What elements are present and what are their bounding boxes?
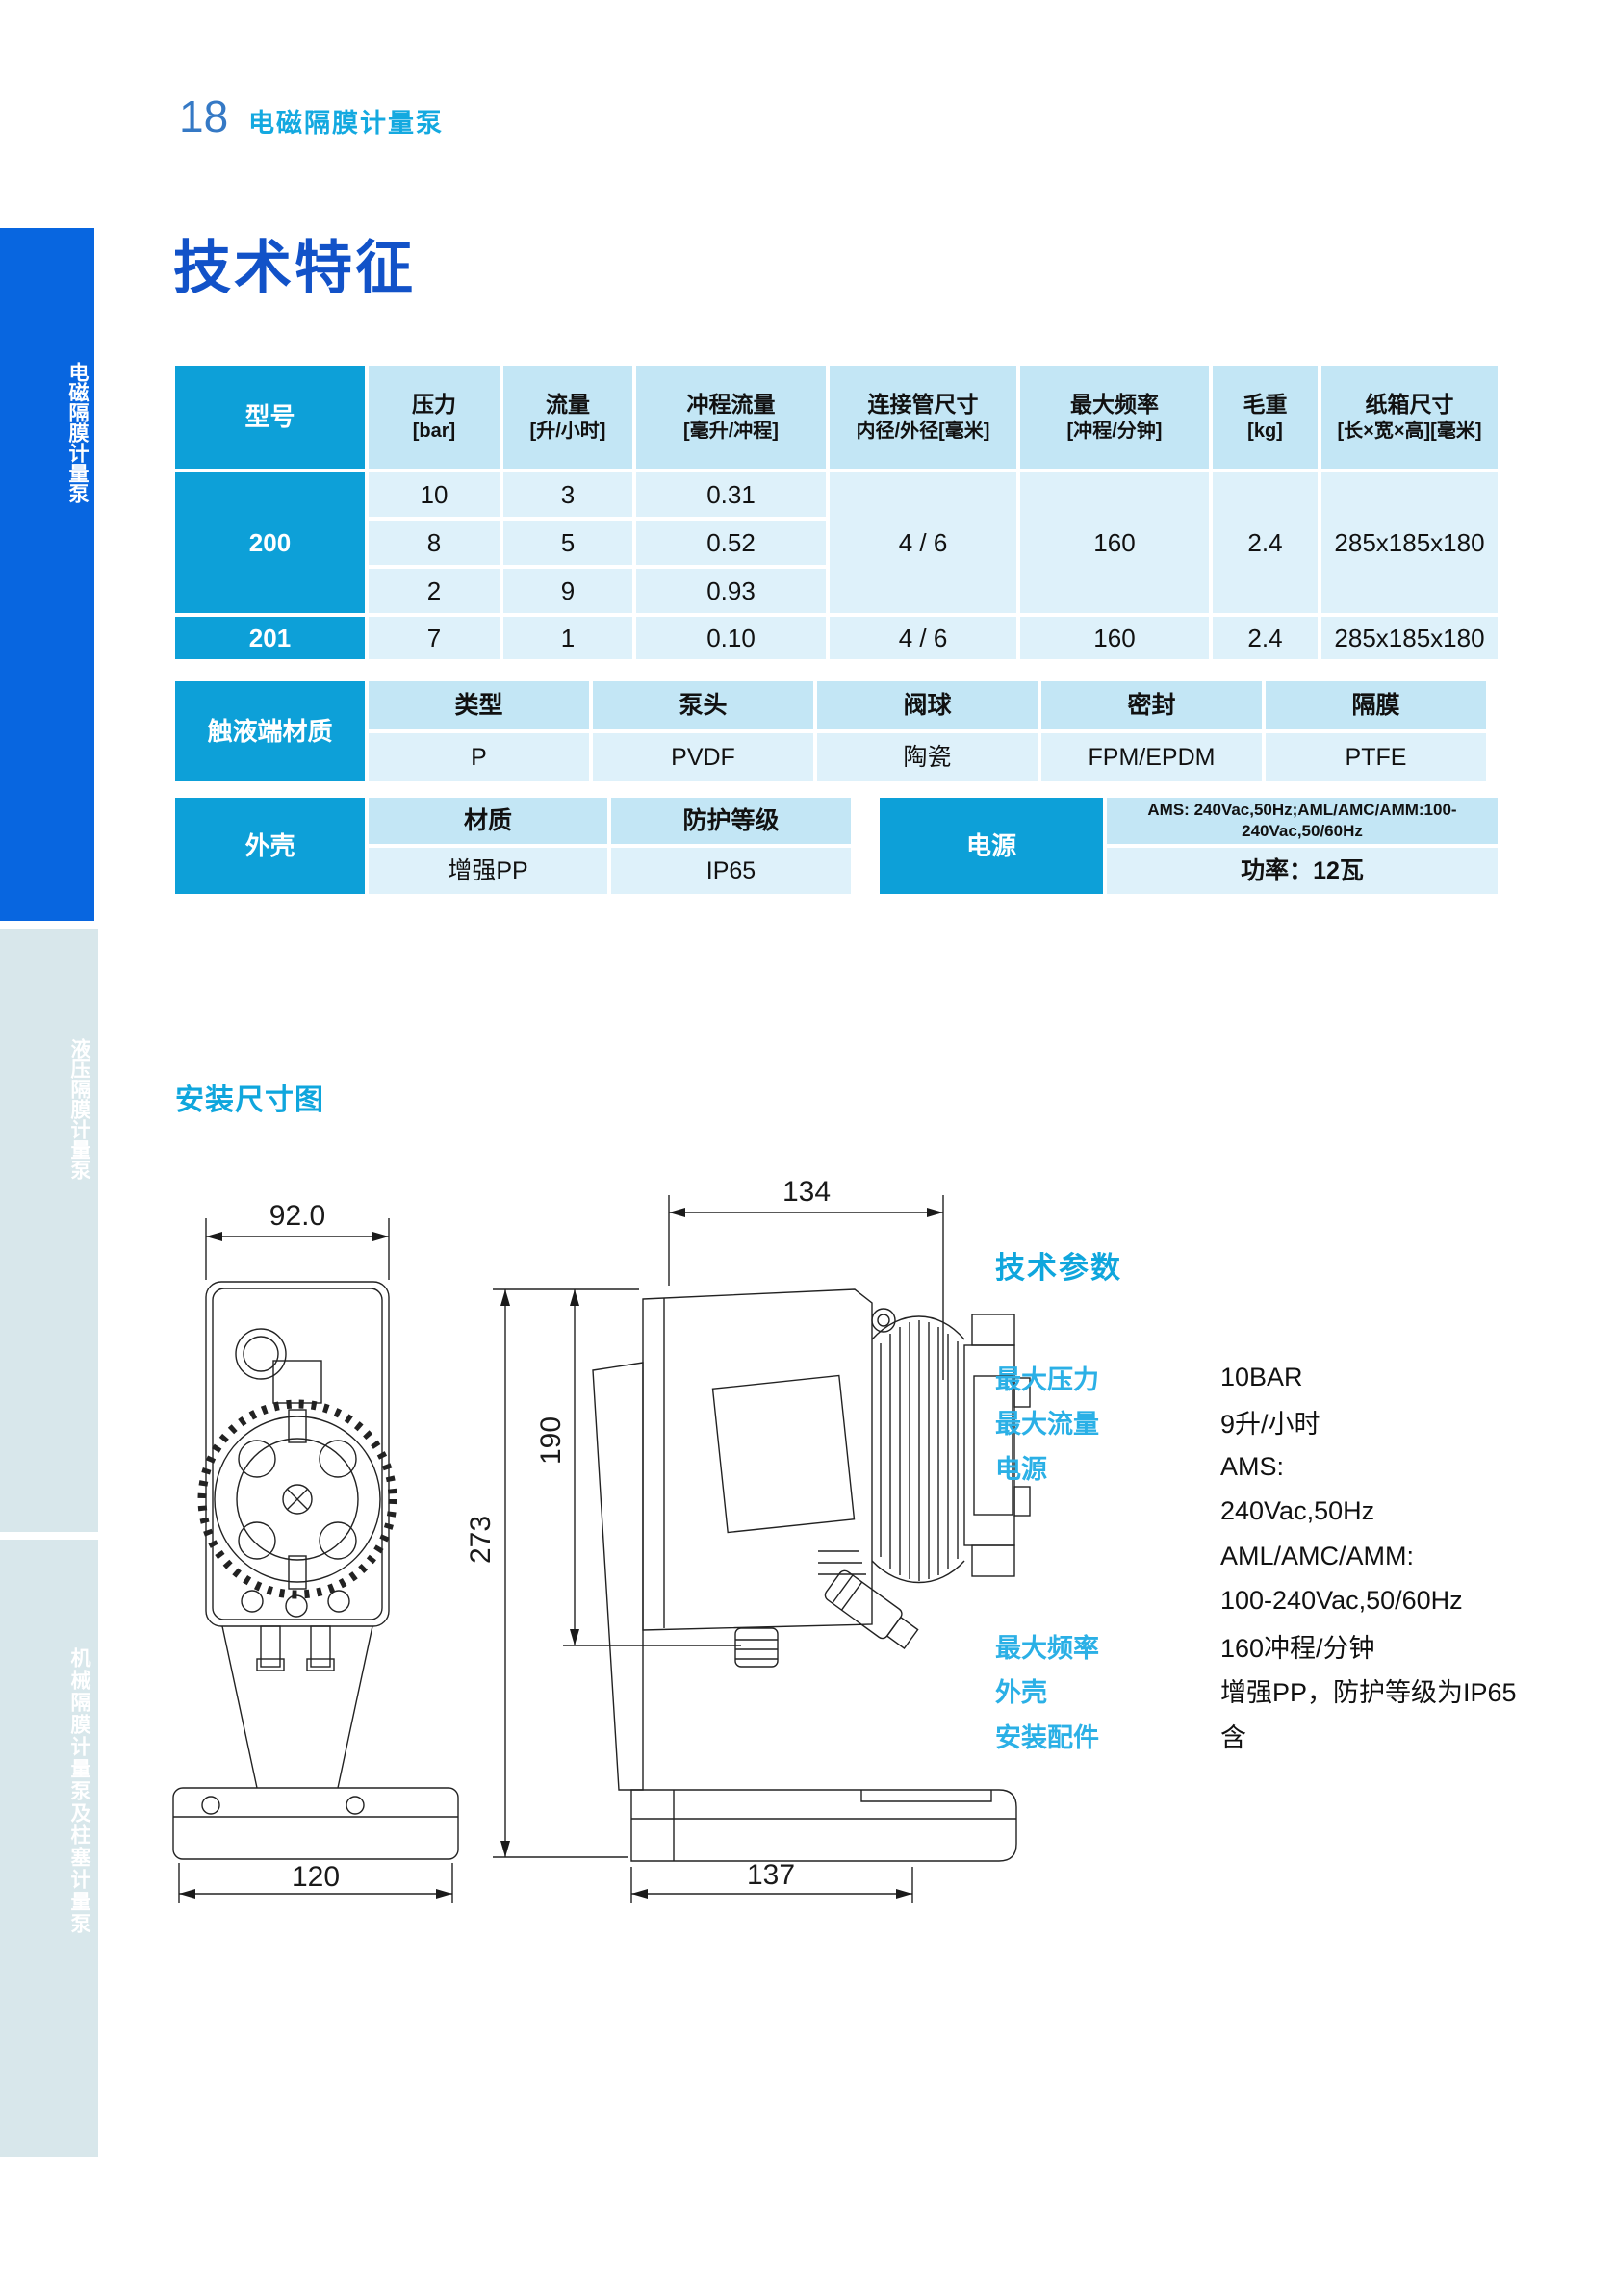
header-unit: [升/小时] bbox=[530, 419, 606, 444]
tech-param-row: 最大频率 160冲程/分钟 bbox=[995, 1623, 1515, 1669]
spec-value-cell: 285x185x180 bbox=[1321, 472, 1498, 613]
spec-header-model: 型号 bbox=[175, 366, 365, 469]
spec-model-cell: 201 bbox=[175, 617, 365, 659]
tech-param-value: 240Vac,50Hz bbox=[1220, 1496, 1374, 1526]
tech-param-value: 增强PP，防护等级为IP65 bbox=[1220, 1671, 1517, 1709]
header-unit: 内径/外径[毫米] bbox=[857, 419, 990, 444]
tech-param-row: 最大流量 9升/小时 bbox=[995, 1400, 1515, 1445]
dim-label-front-top-width: 92.0 bbox=[269, 1200, 325, 1233]
tech-param-row: 240Vac,50Hz bbox=[995, 1490, 1515, 1535]
installation-dimension-drawing bbox=[0, 0, 1615, 2296]
catalog-page: { "colors": { "accent_blue": "#1252c8", … bbox=[0, 0, 1615, 2296]
dim-label-front-base-width: 120 bbox=[292, 1861, 340, 1894]
housing-table: 外壳 材质 防护等级 增强PP IP65 bbox=[175, 798, 851, 894]
tech-param-row: 最大压力 10BAR bbox=[995, 1355, 1515, 1400]
page-number: 18 bbox=[179, 90, 228, 142]
tech-param-label: 安装配件 bbox=[995, 1717, 1220, 1754]
tech-param-value: AML/AMC/AMM: bbox=[1220, 1542, 1414, 1571]
spec-value-cell: 0.31 bbox=[636, 472, 826, 517]
header-unit: [kg] bbox=[1247, 419, 1283, 444]
header-line: 最大频率 bbox=[1070, 390, 1159, 419]
header-line: 型号 bbox=[244, 400, 295, 433]
sidebar-tab-mechanical-pumps[interactable]: 机械隔膜计量泵及柱塞计量泵 bbox=[0, 1540, 98, 2157]
material-value-cell: PVDF bbox=[593, 733, 813, 781]
spec-value-cell: 2.4 bbox=[1213, 472, 1318, 613]
sidebar-tab-label: 液压隔膜计量泵 bbox=[69, 1038, 90, 1180]
tech-param-label: 最大频率 bbox=[995, 1627, 1220, 1665]
tech-param-label: 最大流量 bbox=[995, 1403, 1220, 1441]
sidebar-tab-hydraulic-pumps[interactable]: 液压隔膜计量泵 bbox=[0, 929, 98, 1532]
tech-param-label: 外壳 bbox=[995, 1671, 1220, 1709]
tech-param-value: 含 bbox=[1220, 1717, 1246, 1754]
material-header-diaphragm: 隔膜 bbox=[1266, 681, 1486, 729]
spec-value-cell: 8 bbox=[369, 521, 500, 565]
header-unit: [冲程/分钟] bbox=[1067, 419, 1163, 444]
pump-front-view-drawing bbox=[173, 1218, 458, 1903]
tech-param-row: 100-240Vac,50/60Hz bbox=[995, 1579, 1515, 1624]
spec-value-cell: 5 bbox=[503, 521, 632, 565]
tech-param-value: 160冲程/分钟 bbox=[1220, 1627, 1375, 1665]
sidebar-tab-label: 电磁隔膜计量泵 bbox=[67, 362, 88, 503]
spec-model-cell: 200 bbox=[175, 472, 365, 613]
page-header-title: 电磁隔膜计量泵 bbox=[248, 102, 444, 140]
header-unit: [长×宽×高][毫米] bbox=[1338, 419, 1482, 444]
material-header-seal: 密封 bbox=[1041, 681, 1262, 729]
spec-value-cell: 0.10 bbox=[636, 617, 826, 659]
material-value-cell: P bbox=[369, 733, 589, 781]
housing-table-label: 外壳 bbox=[175, 798, 365, 894]
material-value-cell: FPM/EPDM bbox=[1041, 733, 1262, 781]
tech-param-row: 外壳 增强PP，防护等级为IP65 bbox=[995, 1669, 1515, 1714]
material-table: 触液端材质 类型 泵头 阀球 密封 隔膜 P PVDF 陶瓷 FPM/EPDM … bbox=[175, 681, 1486, 781]
spec-header-pipe-size: 连接管尺寸 内径/外径[毫米] bbox=[830, 366, 1016, 469]
spec-value-cell: 2 bbox=[369, 569, 500, 613]
tech-param-value: 9升/小时 bbox=[1220, 1403, 1320, 1441]
tech-param-value: 100-240Vac,50/60Hz bbox=[1220, 1586, 1463, 1616]
spec-value-cell: 1 bbox=[503, 617, 632, 659]
spec-header-max-frequency: 最大频率 [冲程/分钟] bbox=[1020, 366, 1209, 469]
spec-value-cell: 285x185x180 bbox=[1321, 617, 1498, 659]
dim-label-side-body-height: 190 bbox=[535, 1416, 568, 1465]
header-line: 连接管尺寸 bbox=[868, 390, 979, 419]
housing-header-ip-rating: 防护等级 bbox=[611, 798, 851, 844]
tech-params-title: 技术参数 bbox=[995, 1243, 1122, 1287]
power-table: 电源 AMS: 240Vac,50Hz;AML/AMC/AMM:100-240V… bbox=[880, 798, 1498, 894]
header-line: 压力 bbox=[412, 390, 456, 419]
tech-params-list: 最大压力 10BAR 最大流量 9升/小时 电源 AMS: 240Vac,50H… bbox=[995, 1355, 1515, 1758]
tech-param-row: 安装配件 含 bbox=[995, 1713, 1515, 1758]
housing-header-material: 材质 bbox=[369, 798, 607, 844]
tech-param-value: AMS: bbox=[1220, 1452, 1284, 1482]
header-line: 冲程流量 bbox=[687, 390, 776, 419]
spec-value-cell: 10 bbox=[369, 472, 500, 517]
spec-header-weight: 毛重 [kg] bbox=[1213, 366, 1318, 469]
spec-value-cell: 3 bbox=[503, 472, 632, 517]
material-value-cell: 陶瓷 bbox=[817, 733, 1038, 781]
material-table-label: 触液端材质 bbox=[175, 681, 365, 781]
dim-label-side-base-width: 137 bbox=[747, 1859, 795, 1892]
tech-param-label: 电源 bbox=[995, 1448, 1220, 1486]
tech-param-row: AML/AMC/AMM: bbox=[995, 1534, 1515, 1579]
tech-param-label: 最大压力 bbox=[995, 1359, 1220, 1396]
header-line: 流量 bbox=[546, 390, 590, 419]
spec-value-cell: 7 bbox=[369, 617, 500, 659]
tech-param-value: 10BAR bbox=[1220, 1363, 1303, 1392]
header-line: 毛重 bbox=[1243, 390, 1288, 419]
spec-value-cell: 160 bbox=[1020, 617, 1209, 659]
pump-side-view-drawing bbox=[493, 1195, 1030, 1903]
spec-value-cell: 4 / 6 bbox=[830, 617, 1016, 659]
spec-header-flow: 流量 [升/小时] bbox=[503, 366, 632, 469]
spec-value-cell: 9 bbox=[503, 569, 632, 613]
spec-header-carton: 纸箱尺寸 [长×宽×高][毫米] bbox=[1321, 366, 1498, 469]
header-unit: [bar] bbox=[413, 419, 455, 444]
dim-label-side-top-width: 134 bbox=[782, 1176, 831, 1209]
material-header-type: 类型 bbox=[369, 681, 589, 729]
spec-header-pressure: 压力 [bar] bbox=[369, 366, 500, 469]
housing-value-cell: 增强PP bbox=[369, 848, 607, 894]
spec-table: 型号 压力 [bar] 流量 [升/小时] 冲程流量 [毫升/冲程] 连接管尺寸… bbox=[175, 366, 1498, 659]
sidebar-tab-label: 机械隔膜计量泵及柱塞计量泵 bbox=[69, 1647, 90, 1935]
power-voltage-cell: AMS: 240Vac,50Hz;AML/AMC/AMM:100-240Vac,… bbox=[1107, 798, 1498, 844]
spec-value-cell: 160 bbox=[1020, 472, 1209, 613]
page-title: 技术特征 bbox=[173, 221, 416, 305]
power-table-label: 电源 bbox=[880, 798, 1103, 894]
sidebar-tab-solenoid-pumps[interactable]: 电磁隔膜计量泵 bbox=[0, 228, 94, 921]
material-value-cell: PTFE bbox=[1266, 733, 1486, 781]
spec-value-cell: 4 / 6 bbox=[830, 472, 1016, 613]
installation-section-title: 安装尺寸图 bbox=[175, 1076, 324, 1118]
header-unit: [毫升/冲程] bbox=[683, 419, 779, 444]
housing-value-cell: IP65 bbox=[611, 848, 851, 894]
spec-value-cell: 2.4 bbox=[1213, 617, 1318, 659]
spec-header-stroke-volume: 冲程流量 [毫升/冲程] bbox=[636, 366, 826, 469]
header-line: 纸箱尺寸 bbox=[1366, 390, 1454, 419]
power-wattage-cell: 功率：12瓦 bbox=[1107, 848, 1498, 894]
spec-value-cell: 0.52 bbox=[636, 521, 826, 565]
spec-value-cell: 0.93 bbox=[636, 569, 826, 613]
tech-param-row: 电源 AMS: bbox=[995, 1444, 1515, 1490]
material-header-pump-head: 泵头 bbox=[593, 681, 813, 729]
dim-label-side-total-height: 273 bbox=[465, 1516, 498, 1564]
material-header-valve-ball: 阀球 bbox=[817, 681, 1038, 729]
